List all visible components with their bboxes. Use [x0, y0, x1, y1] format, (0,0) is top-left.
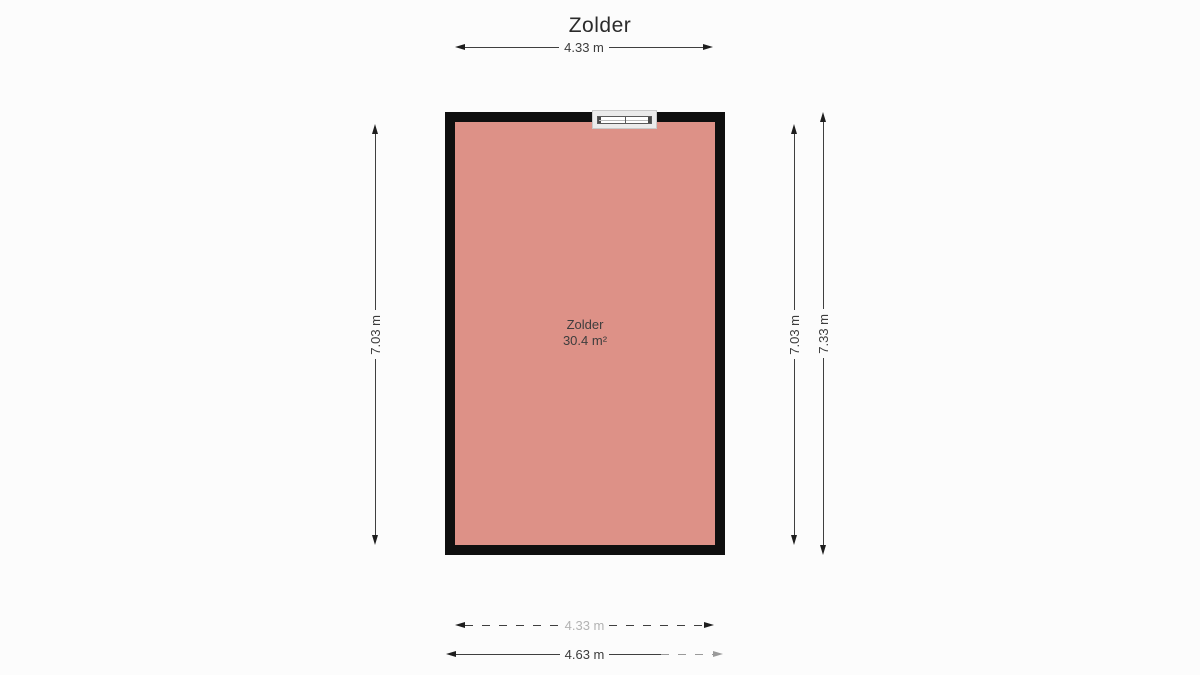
dimension-line — [609, 654, 661, 655]
dimension-line — [465, 47, 559, 48]
window-divider — [625, 117, 626, 123]
dimension-line-group — [609, 646, 713, 662]
dimension-line — [609, 47, 703, 48]
room-name: Zolder — [445, 317, 725, 333]
window-post — [648, 117, 651, 123]
dimension-line-dashed — [465, 625, 560, 626]
arrow-left-icon — [455, 622, 465, 628]
arrow-left-icon — [455, 44, 465, 50]
dimension-top-inner-width: 4.33 m — [455, 39, 713, 55]
dimension-bottom-inner-width: 4.33 m — [455, 617, 714, 633]
page-title: Zolder — [0, 14, 1200, 38]
floorplan-canvas: Zolder 4.33 m Zolder 30.4 m² 7.03 m 7. — [0, 0, 1200, 675]
arrow-left-icon — [446, 651, 456, 657]
arrow-up-icon — [372, 124, 378, 134]
dimension-line-dashed — [609, 625, 704, 626]
room-area: 30.4 m² — [445, 333, 725, 349]
room-label: Zolder 30.4 m² — [445, 317, 725, 349]
arrow-down-icon — [820, 545, 826, 555]
window-icon — [592, 110, 657, 129]
window-frame — [597, 116, 652, 124]
dimension-line — [823, 358, 824, 545]
dimension-left-inner-height: 7.03 m — [367, 124, 383, 545]
dimension-label: 7.03 m — [368, 310, 383, 360]
dimension-line — [823, 122, 824, 309]
dimension-line — [375, 134, 376, 310]
dimension-label: 4.63 m — [560, 647, 610, 662]
arrow-down-icon — [372, 535, 378, 545]
arrow-up-icon — [820, 112, 826, 122]
dimension-bottom-outer-width: 4.63 m — [446, 646, 723, 662]
dimension-label: 4.33 m — [560, 618, 610, 633]
dimension-line — [456, 654, 560, 655]
dimension-line — [375, 359, 376, 535]
dimension-line-dashed — [661, 654, 713, 655]
arrow-right-icon — [704, 622, 714, 628]
arrow-right-icon — [703, 44, 713, 50]
dimension-line — [794, 359, 795, 535]
dimension-label: 4.33 m — [559, 40, 609, 55]
dimension-line — [794, 134, 795, 310]
dimension-label: 7.03 m — [787, 310, 802, 360]
arrow-right-icon — [713, 651, 723, 657]
dimension-right-inner-height: 7.03 m — [786, 124, 802, 545]
arrow-up-icon — [791, 124, 797, 134]
dimension-right-outer-height: 7.33 m — [815, 112, 831, 555]
arrow-down-icon — [791, 535, 797, 545]
dimension-label: 7.33 m — [816, 309, 831, 359]
